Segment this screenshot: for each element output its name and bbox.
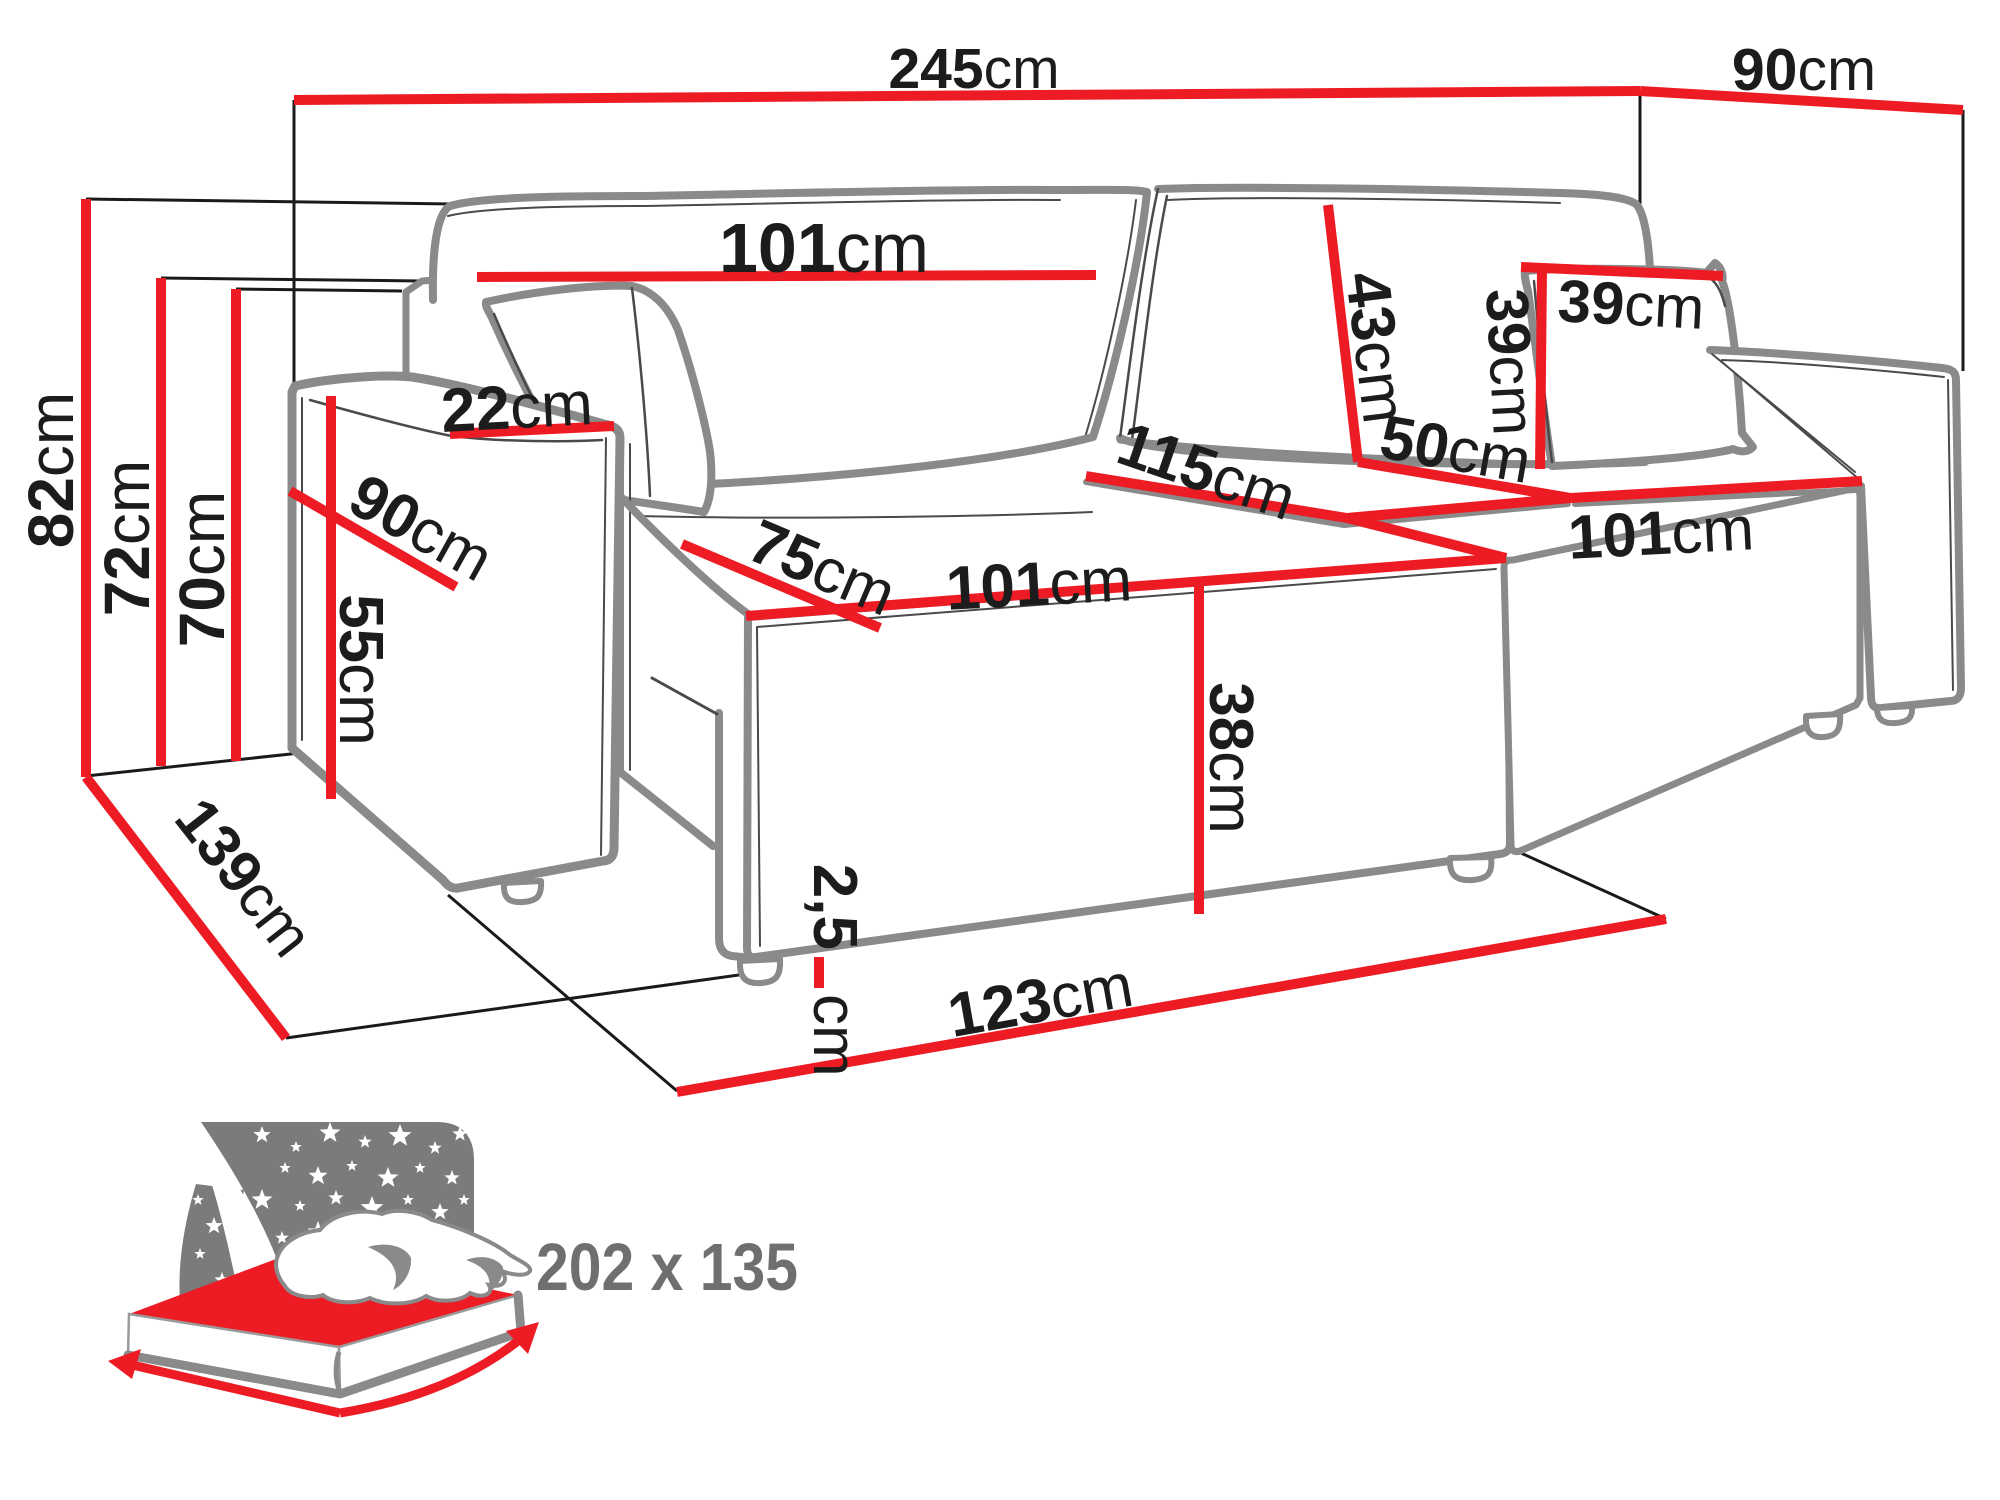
svg-text:2,5: 2,5 (800, 864, 869, 950)
svg-text:202 x 135: 202 x 135 (536, 1230, 798, 1305)
svg-text:55cm: 55cm (326, 594, 395, 746)
svg-text:39cm: 39cm (1473, 287, 1548, 437)
svg-text:70cm: 70cm (166, 491, 238, 648)
svg-text:cm: cm (800, 994, 869, 1077)
svg-text:38cm: 38cm (1196, 682, 1265, 834)
svg-text:90cm: 90cm (1732, 37, 1876, 103)
svg-text:39cm: 39cm (1556, 267, 1706, 342)
svg-text:82cm: 82cm (15, 392, 87, 549)
svg-text:101cm: 101cm (1566, 494, 1755, 573)
svg-text:101cm: 101cm (719, 209, 929, 287)
svg-text:101cm: 101cm (944, 545, 1133, 624)
svg-text:245cm: 245cm (888, 37, 1059, 101)
svg-text:72cm: 72cm (91, 460, 163, 617)
svg-text:22cm: 22cm (439, 369, 594, 446)
